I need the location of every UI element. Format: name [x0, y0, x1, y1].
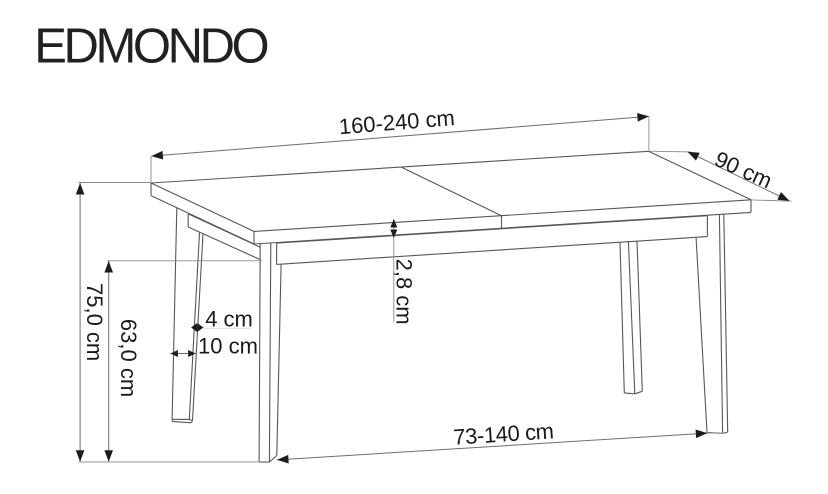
svg-text:EDMONDO: EDMONDO — [34, 19, 267, 73]
svg-text:2,8 cm: 2,8 cm — [392, 259, 417, 325]
svg-text:75,0 cm: 75,0 cm — [82, 283, 107, 361]
svg-text:63,0 cm: 63,0 cm — [116, 319, 141, 397]
svg-text:10 cm: 10 cm — [198, 333, 258, 358]
svg-text:4 cm: 4 cm — [205, 307, 253, 332]
